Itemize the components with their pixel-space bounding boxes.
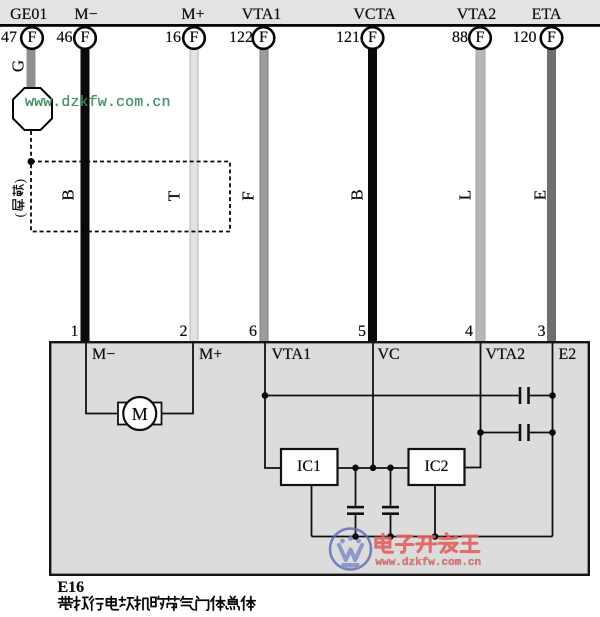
svg-text:): ) <box>13 179 28 184</box>
svg-text:(: ( <box>13 213 28 218</box>
